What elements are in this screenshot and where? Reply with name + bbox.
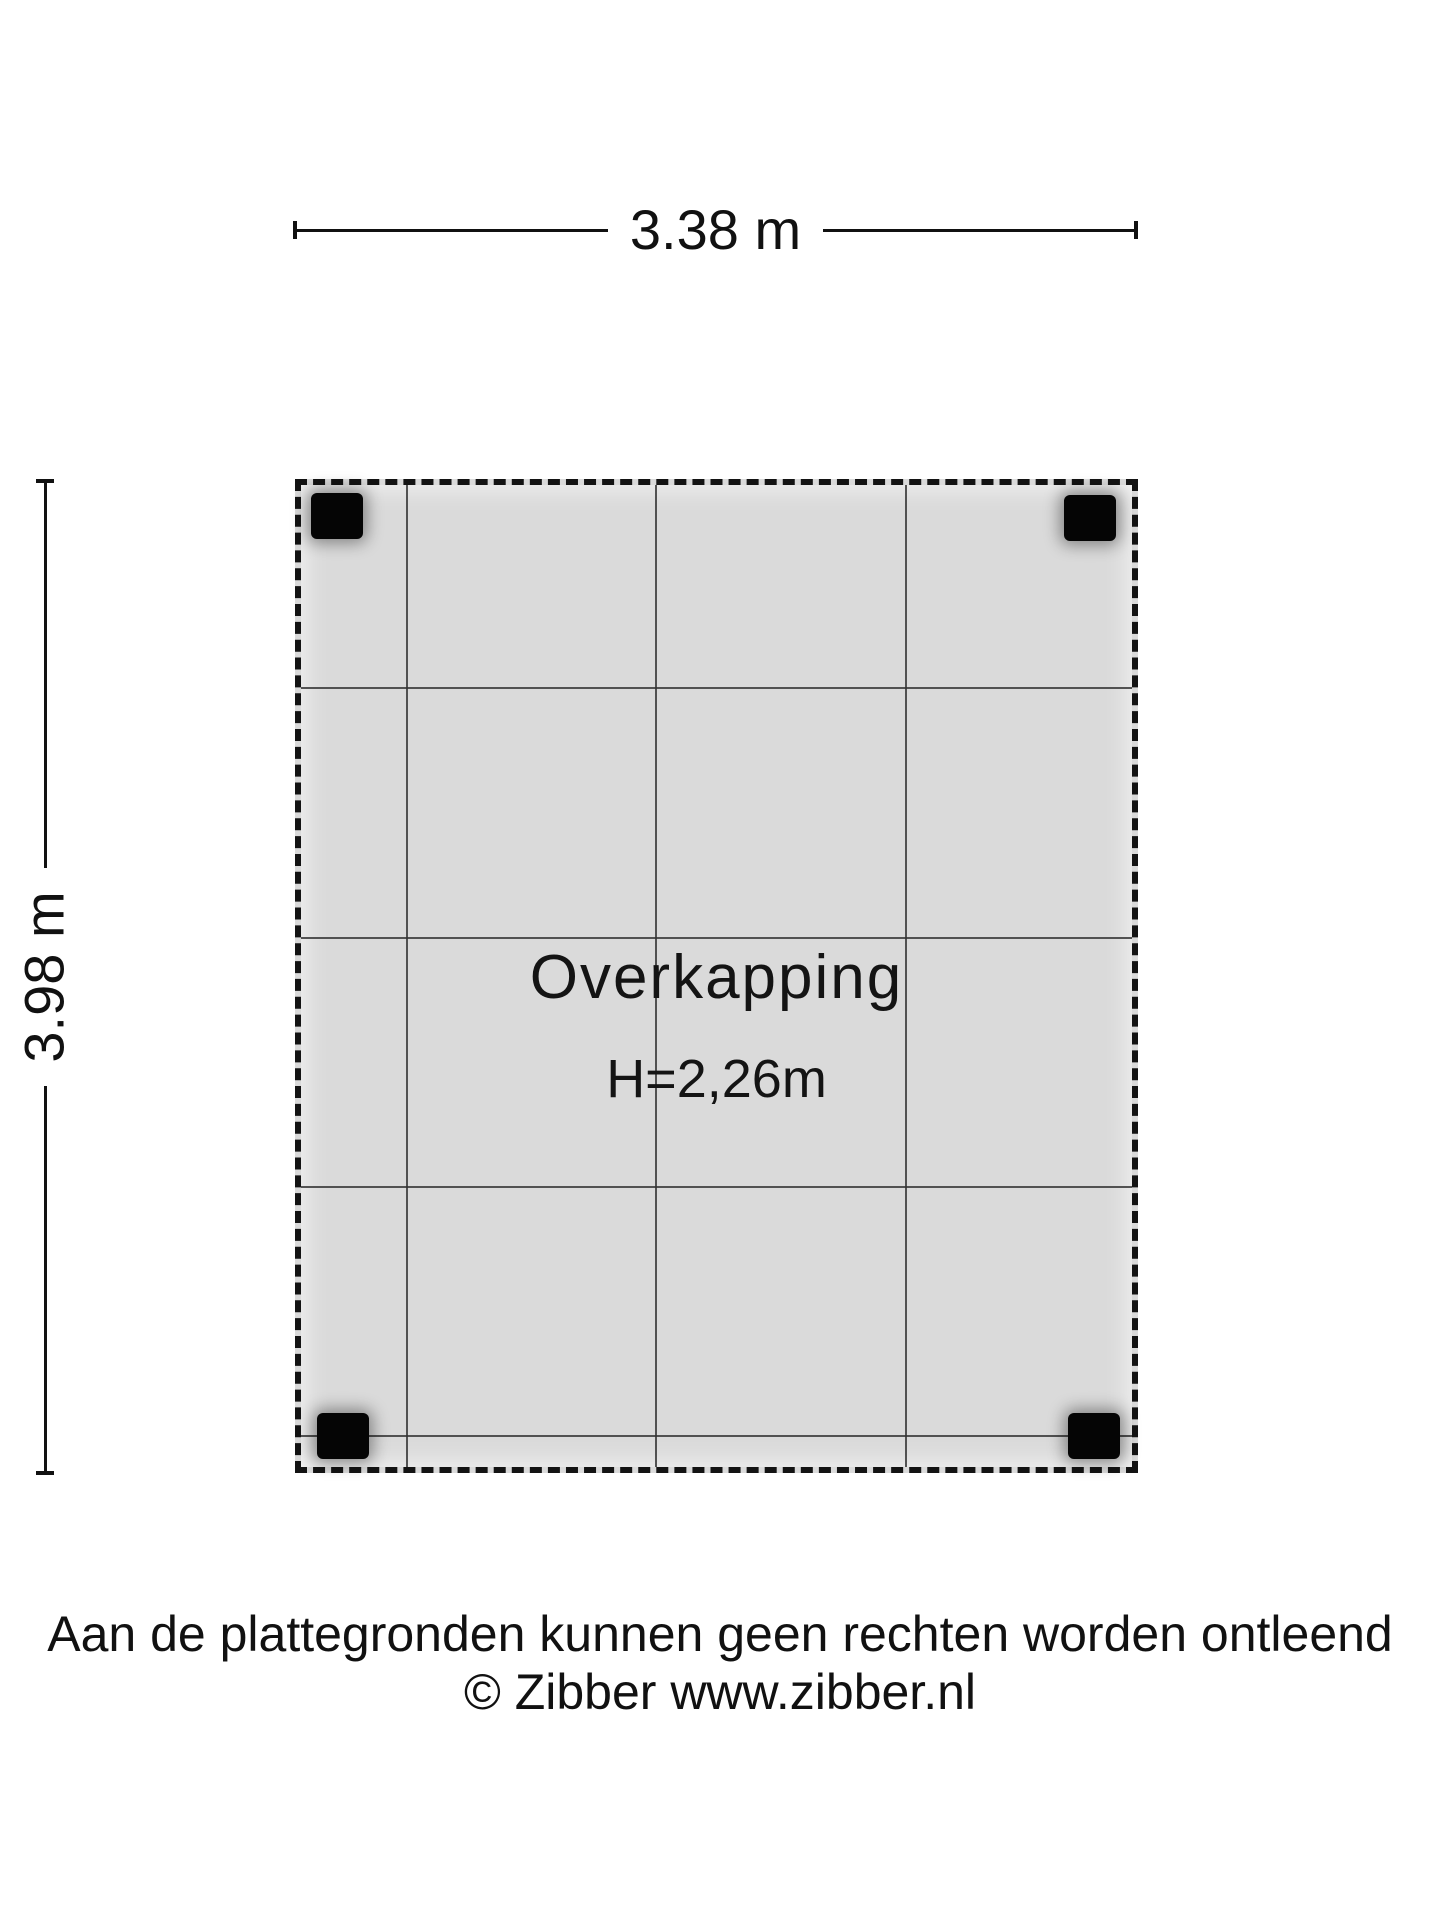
footer: Aan de plattegronden kunnen geen rechten… <box>0 1605 1440 1721</box>
dimension-line-segment <box>823 229 1134 232</box>
floorplan-room-overkapping: Overkapping H=2,26m <box>295 479 1138 1473</box>
grid-line-horizontal <box>301 1186 1132 1188</box>
dimension-width-label: 3.38 m <box>608 200 823 260</box>
room-name-label: Overkapping <box>301 943 1132 1013</box>
dimension-tick-right <box>1134 221 1138 239</box>
post-bottom-right <box>1068 1413 1120 1459</box>
grid-line-horizontal <box>301 1435 1132 1437</box>
grid-line-horizontal <box>301 937 1132 939</box>
post-top-right <box>1064 495 1116 541</box>
room-ceiling-height-label: H=2,26m <box>301 1049 1132 1109</box>
post-top-left <box>311 493 363 539</box>
dimension-line-segment <box>44 1086 47 1471</box>
grid-line-horizontal <box>301 687 1132 689</box>
floorplan-page: 3.38 m 3.98 m Overkapping H=2,26m Aan de… <box>0 0 1440 1920</box>
dimension-tick-bottom <box>36 1471 54 1475</box>
footer-copyright: © Zibber www.zibber.nl <box>0 1663 1440 1721</box>
dimension-line-segment <box>44 483 47 868</box>
dimension-width: 3.38 m <box>293 200 1138 260</box>
post-bottom-left <box>317 1413 369 1459</box>
dimension-height-label-wrap: 3.98 m <box>27 868 63 1086</box>
dimension-line-segment <box>297 229 608 232</box>
dimension-height-label: 3.98 m <box>17 891 73 1062</box>
footer-disclaimer: Aan de plattegronden kunnen geen rechten… <box>0 1605 1440 1663</box>
dimension-height: 3.98 m <box>27 479 63 1475</box>
